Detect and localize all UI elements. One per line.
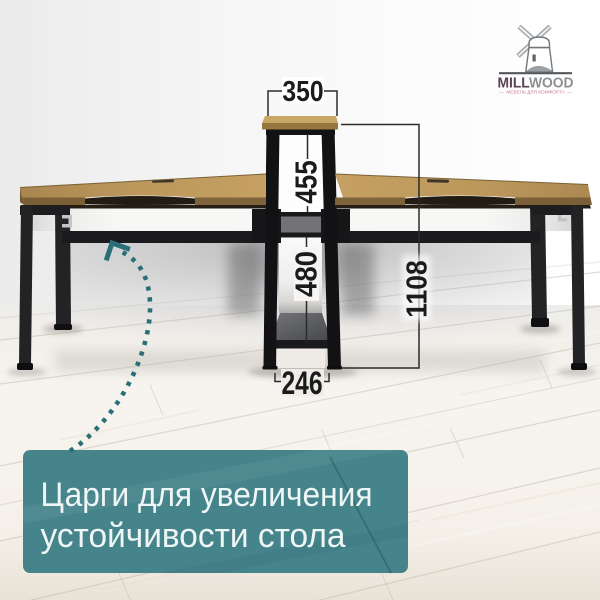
svg-text:— МЕБЕЛЬ ДЛЯ КОМФОРТА —: — МЕБЕЛЬ ДЛЯ КОМФОРТА — xyxy=(499,90,573,95)
svg-text:устойчивости стола: устойчивости стола xyxy=(41,517,347,555)
svg-text:455: 455 xyxy=(289,160,324,203)
svg-text:Царги для увеличения: Царги для увеличения xyxy=(41,476,373,514)
svg-text:480: 480 xyxy=(289,251,324,297)
svg-text:246: 246 xyxy=(281,366,322,402)
svg-text:350: 350 xyxy=(282,75,323,107)
svg-text:1108: 1108 xyxy=(401,260,433,317)
